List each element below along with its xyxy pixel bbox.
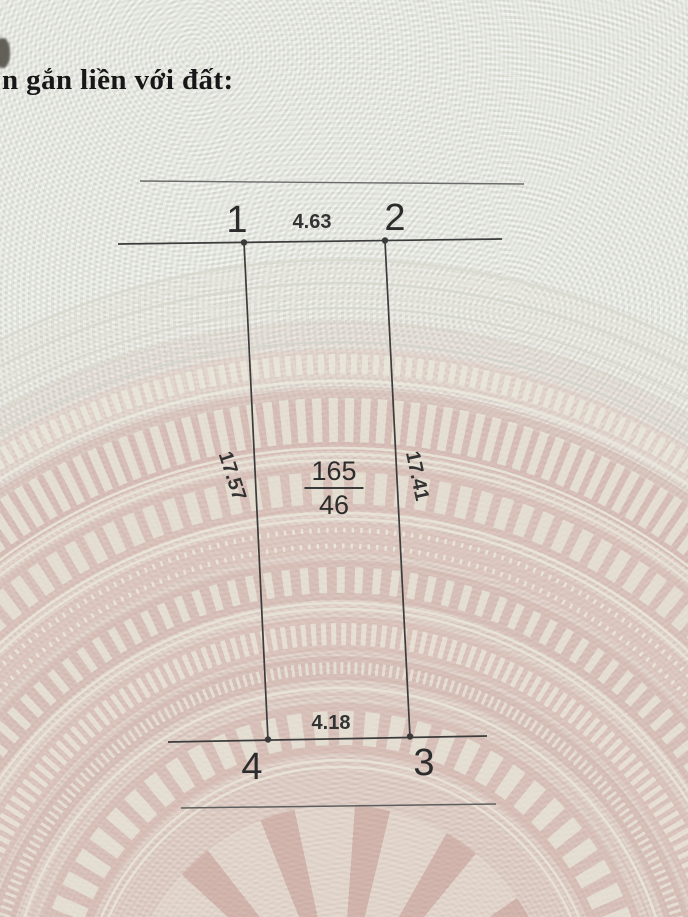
parcel-label: 165 46 — [304, 458, 363, 519]
parcel-plot-number: 165 — [304, 458, 363, 489]
separator-line-top — [140, 181, 524, 184]
corner-label-1: 1 — [226, 201, 247, 239]
parcel-area: 46 — [304, 489, 363, 519]
corner-point-4 — [265, 736, 271, 742]
edge-length-top: 4.63 — [293, 212, 332, 232]
corner-label-2: 2 — [384, 199, 405, 237]
boundary-line-right — [385, 241, 410, 737]
boundary-line-top — [118, 239, 502, 244]
corner-point-3 — [407, 733, 413, 739]
corner-label-3: 3 — [413, 744, 434, 782]
edge-length-bottom: 4.18 — [312, 713, 351, 733]
certificate-page: n gắn liền với đất: 1 2 3 4 4.63 17.57 1… — [0, 0, 688, 917]
corner-label-4: 4 — [241, 748, 262, 786]
separator-line-bottom — [181, 804, 496, 808]
boundary-line-bottom — [168, 736, 487, 742]
